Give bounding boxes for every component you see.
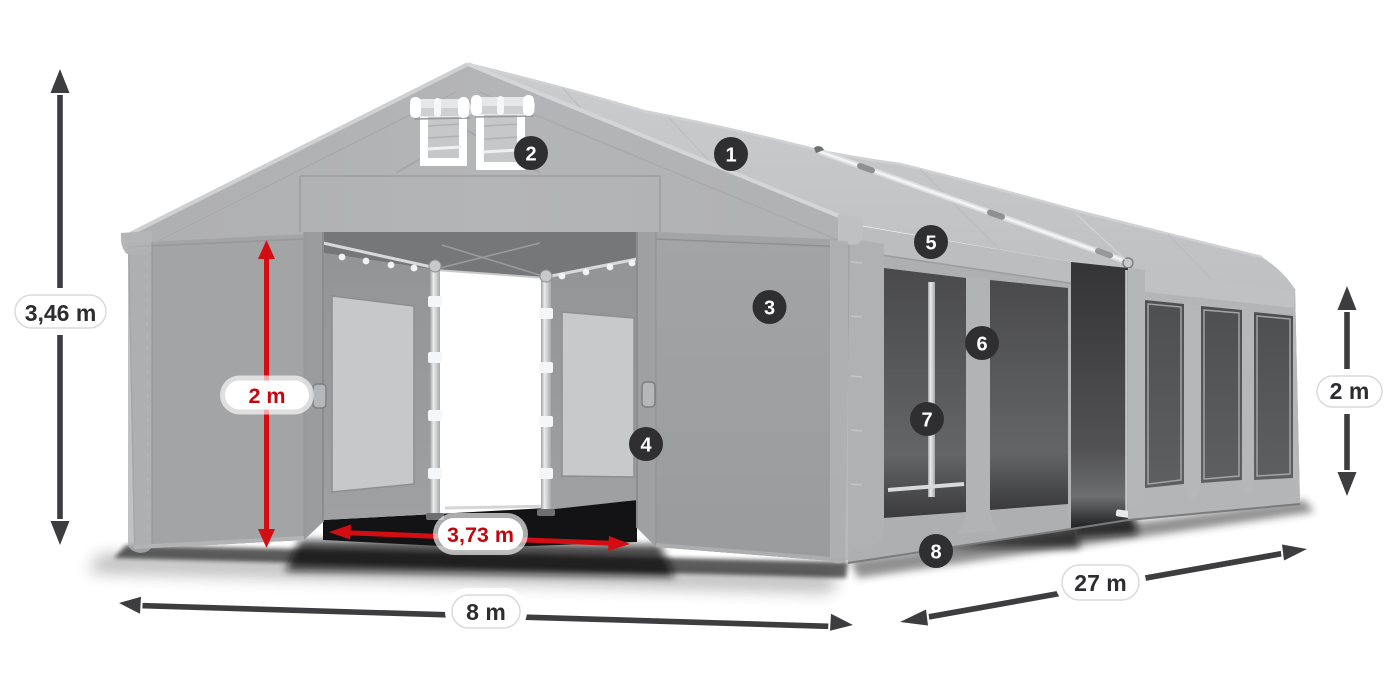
svg-text:27 m: 27 m [1074,570,1126,596]
svg-text:7: 7 [921,410,932,432]
svg-text:2 m: 2 m [1330,378,1370,404]
svg-text:6: 6 [976,334,987,356]
svg-text:1: 1 [725,145,736,167]
svg-text:3: 3 [764,298,775,320]
svg-text:2: 2 [525,144,536,166]
svg-text:8 m: 8 m [466,599,506,625]
svg-text:2 m: 2 m [248,384,285,408]
svg-text:4: 4 [640,435,652,457]
svg-text:5: 5 [925,233,936,255]
svg-text:8: 8 [930,542,941,564]
svg-text:3,46 m: 3,46 m [25,300,97,326]
svg-text:3,73 m: 3,73 m [447,523,514,547]
